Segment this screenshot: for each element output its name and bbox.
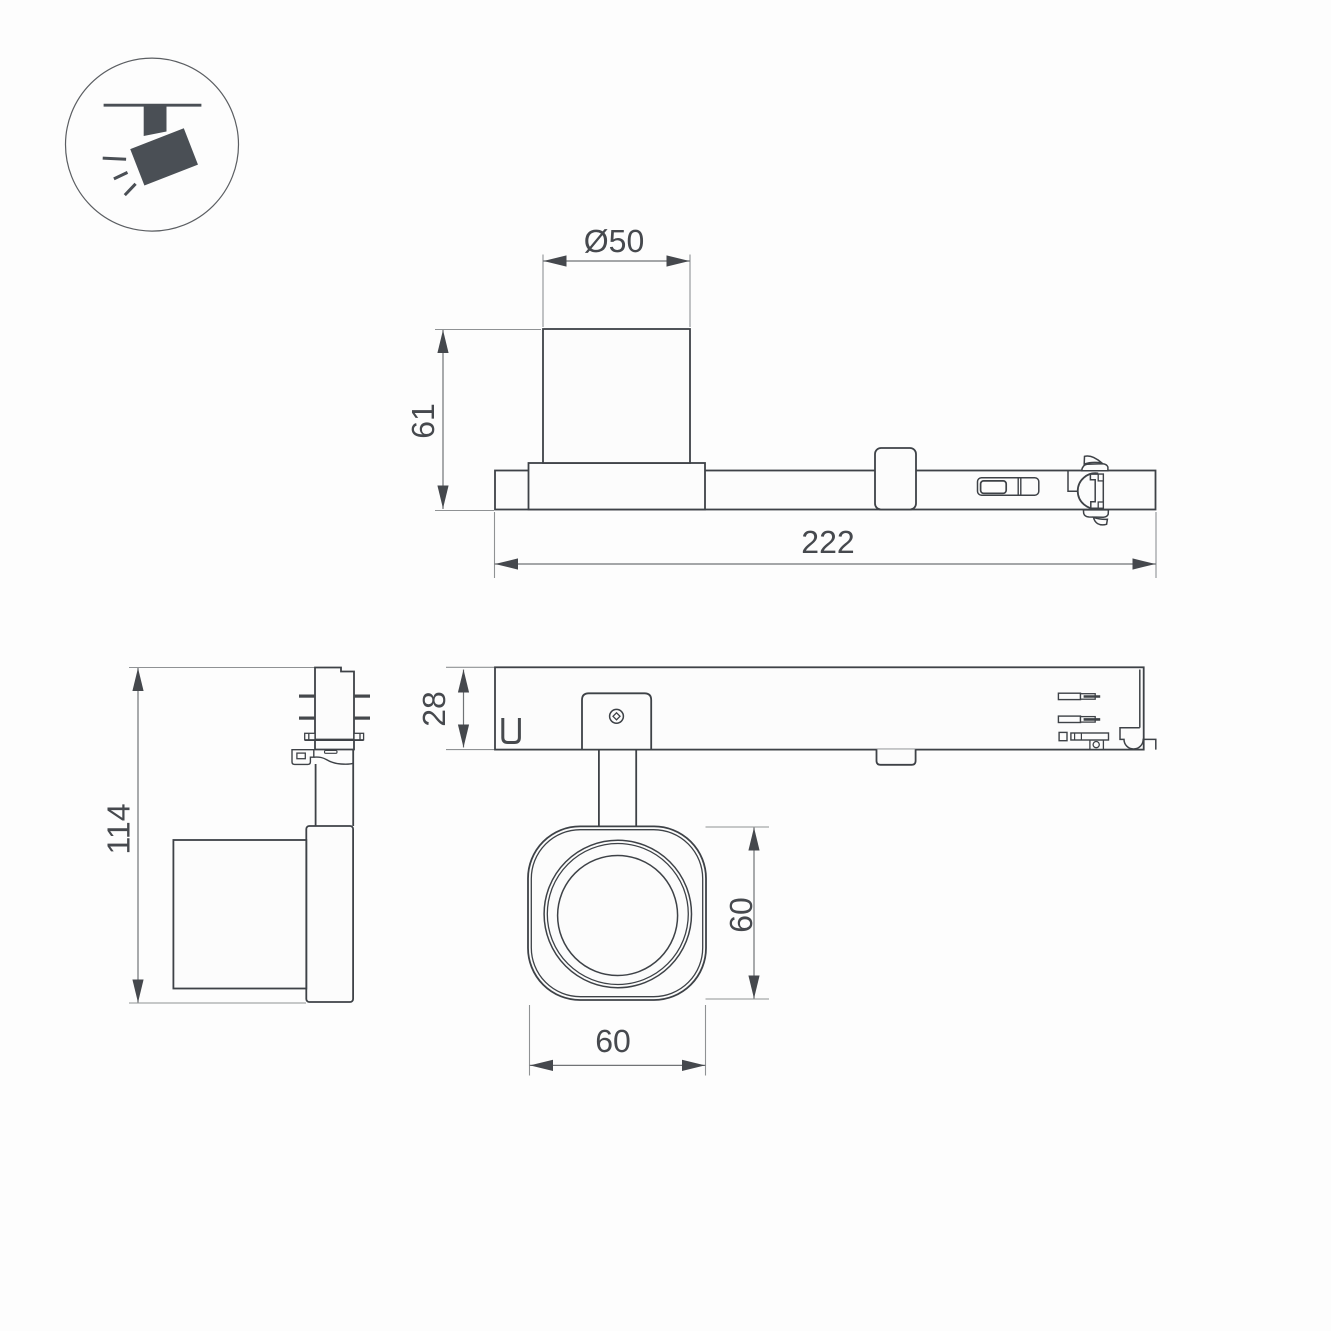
svg-text:60: 60: [595, 1023, 631, 1059]
svg-text:28: 28: [416, 691, 452, 727]
svg-text:222: 222: [801, 524, 854, 560]
svg-text:114: 114: [101, 803, 137, 854]
svg-text:61: 61: [405, 403, 441, 439]
svg-text:Ø50: Ø50: [584, 223, 644, 259]
